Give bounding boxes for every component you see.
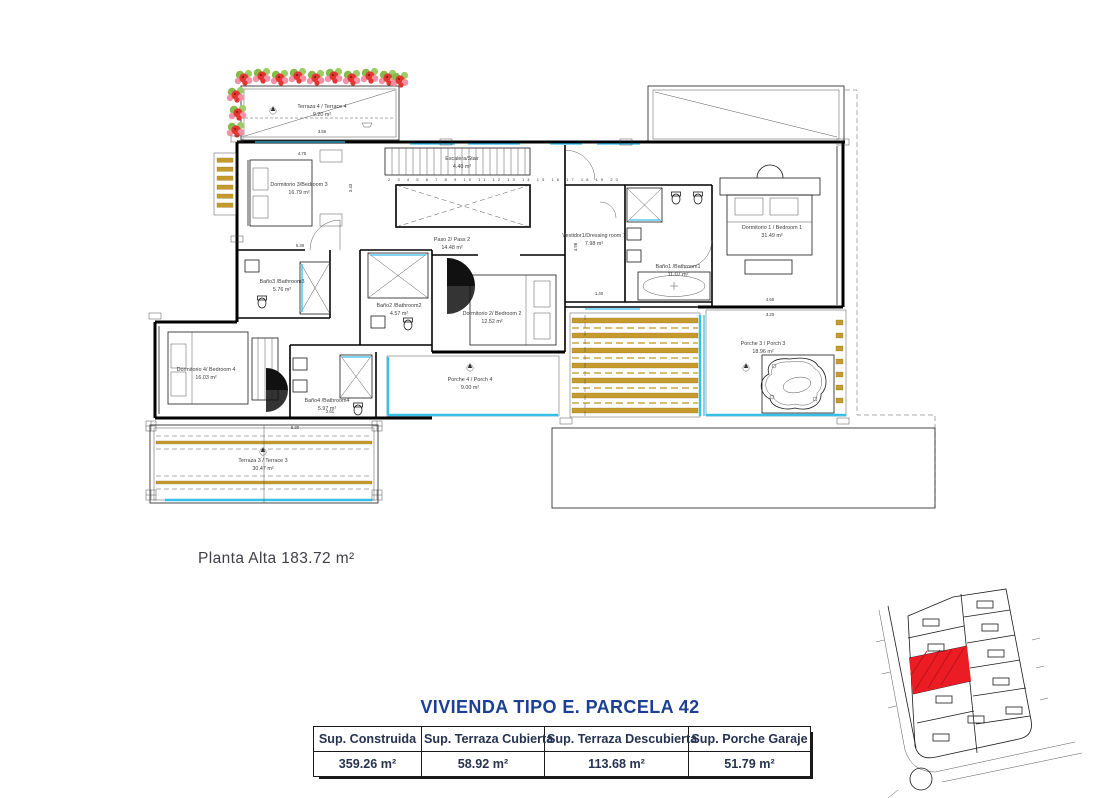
room-label: Dormitorio 2/ Bedroom 2 [463,311,522,317]
door-swing [565,150,595,180]
dim-text: 3.20 [766,312,775,317]
bed [470,275,556,345]
bath4: Baño4 /Bathroom4 5.97 m² 2.61 [293,355,372,415]
dim-text: 5.30 [291,425,300,430]
highlighted-parcel [909,646,971,694]
room-label: Baño2 /Bathroom2 [377,303,422,309]
jacuzzi [761,355,834,413]
headboard [720,178,820,195]
table-header: Sup. Terraza Descubierta [545,727,689,752]
bidet-icon [694,192,703,204]
room-area: 18.96 m² [752,349,773,355]
room-area: 9.00 m² [461,385,479,391]
pillow [534,313,550,339]
table-header: Sup. Porche Garaje [689,727,810,752]
column-post-icon [372,490,382,500]
porch3: Porche 3 / Porch 3 18.96 m² [706,310,846,416]
table-header: Sup. Construida [314,727,422,752]
dim-text: 4.98 [573,242,578,251]
lower-roof-slab [552,428,935,508]
parcel-map [876,589,1082,798]
areas-table: Sup. Construida Sup. Terraza Cubierta Su… [313,726,811,777]
column-post-icon [372,421,382,431]
plan-sheet: Terraza 4 / Terrace 4 9.20 m² 3.56 [0,0,1111,798]
dim-text: 3.56 [318,129,327,134]
sink-icon [371,316,385,328]
pergola-louvers [570,313,704,417]
room-area: 11.07 m² [668,272,689,278]
dim-text: 5.30 [296,243,305,248]
pillow [735,198,763,215]
door-swing [600,202,616,218]
sink-icon [293,358,307,370]
sink-icon [627,228,641,240]
road-line [942,753,1082,782]
table-header: Sup. Terraza Cubierta [422,727,545,752]
pillow [171,344,186,368]
door-leaf [447,258,475,286]
bedroom1: Dormitorio 1 / Bedroom 1 31.49 m² 4.60 3… [684,165,820,317]
plot-boundary [845,90,935,508]
room-area: 16.03 m² [195,375,216,381]
room-label: Porche 4 / Porch 4 [448,377,493,383]
table-value: 359.26 m² [314,752,422,776]
exterior-walls [155,142,845,418]
room-label: Escalera/Stair [445,156,479,162]
sink-icon [627,250,641,262]
bedroom4: Dormitorio 4/ Bedroom 4 16.03 m² 5.30 [168,332,300,430]
vent-icon [362,123,372,127]
sink-icon [245,260,259,272]
room-label: Baño3 /Bathroom3 [260,279,305,285]
dim-text: 3.43 [348,183,353,192]
dressing-room: Vestidor1/Dressing room 1 7.98 m² 1.40 [562,202,626,296]
room-area: 31.49 m² [761,233,782,239]
room-label: Dormitorio 3/Bedroom 3 [270,182,327,188]
room-label: Baño4 /Bathroom4 [305,398,350,404]
dim-text: 4.60 [766,297,775,302]
door-leaf [447,286,475,314]
column-post-icon [146,421,156,431]
toilet-icon [672,192,681,204]
dim-text: 2.61 [326,409,335,414]
room-area: 16.79 m² [288,190,309,196]
terrace4: Terraza 4 / Terrace 4 9.20 m² 3.56 [241,86,399,140]
porch4: Porche 4 / Porch 4 9.00 m² [387,356,559,416]
sink-icon [293,380,307,392]
stair: 2 3 4 5 6 7 8 9 10 11 12 13 14 15 16 17 … [385,148,621,227]
dim-text: 4.75 [298,151,307,156]
room-label: Baño1 /Bathroom1 [656,264,701,270]
room-area: 12.52 m² [481,319,502,325]
road-line [905,742,1075,772]
room-label: Porche 3 / Porch 3 [741,341,786,347]
table-value: 113.68 m² [545,752,689,776]
floor-area-label: Planta Alta 183.72 m² [198,550,355,568]
column-post-icon [146,490,156,500]
toilet-icon [404,318,413,330]
bath3: Baño3 /Bathroom3 5.76 m² 5.30 [245,243,330,314]
room-area: 9.20 m² [313,112,331,118]
room-label: Paso 2/ Pass 2 [434,237,470,243]
table-value: 58.92 m² [422,752,545,776]
room-area: 7.98 m² [585,241,603,247]
room-area: 30.47 m² [252,466,273,472]
bath1: Baño1 /Bathroom1 11.07 m² [627,188,710,300]
room-area: 4.40 m² [453,164,471,170]
room-area: 14.48 m² [441,245,462,251]
room-area: 5.76 m² [273,287,291,293]
room-label: Dormitorio 1 / Bedroom 1 [742,225,802,231]
pillow [534,281,550,307]
bench [745,260,792,274]
door-swing [310,220,340,250]
terrace3: Terraza 3 / Terrace 3 30.47 m² [146,421,382,503]
door-leaf [266,390,288,412]
pillow [770,198,798,215]
room-label: Vestidor1/Dressing room 1 [562,233,626,239]
level-mark-icon [270,106,276,114]
level-mark-icon [743,363,749,371]
level-mark-icon [467,363,473,371]
toilet-icon [258,296,267,308]
roof-area [648,86,844,143]
flower-hedge [227,68,409,138]
toilet-icon [354,403,363,415]
dim-text: 1.40 [595,291,604,296]
room-label: Terraza 4 / Terrace 4 [297,104,346,110]
left-louver-strip [214,153,236,215]
room-label: Dormitorio 4/ Bedroom 4 [177,367,236,373]
room-area: 4.57 m² [390,311,408,317]
room-label: Terraza 3 / Terrace 3 [238,458,287,464]
level-mark-icon [260,447,266,455]
bedroom2: Dormitorio 2/ Bedroom 2 12.52 m² [447,258,556,345]
page-title: VIVIENDA TIPO E. PARCELA 42 [300,697,820,718]
road-line [879,610,905,750]
bedroom3: Dormitorio 3/Bedroom 3 16.79 m² 4.75 3.4… [248,150,353,250]
table-value: 51.79 m² [689,752,810,776]
roundabout [910,768,932,790]
floorplan-drawing: Terraza 4 / Terrace 4 9.20 m² 3.56 [0,0,1111,798]
pillow [171,372,186,396]
door-leaf [266,368,288,390]
stair-step-numbers: 2 3 4 5 6 7 8 9 10 11 12 13 14 15 16 17 … [388,177,621,182]
bath2: Baño2 /Bathroom2 4.57 m² [368,253,428,330]
